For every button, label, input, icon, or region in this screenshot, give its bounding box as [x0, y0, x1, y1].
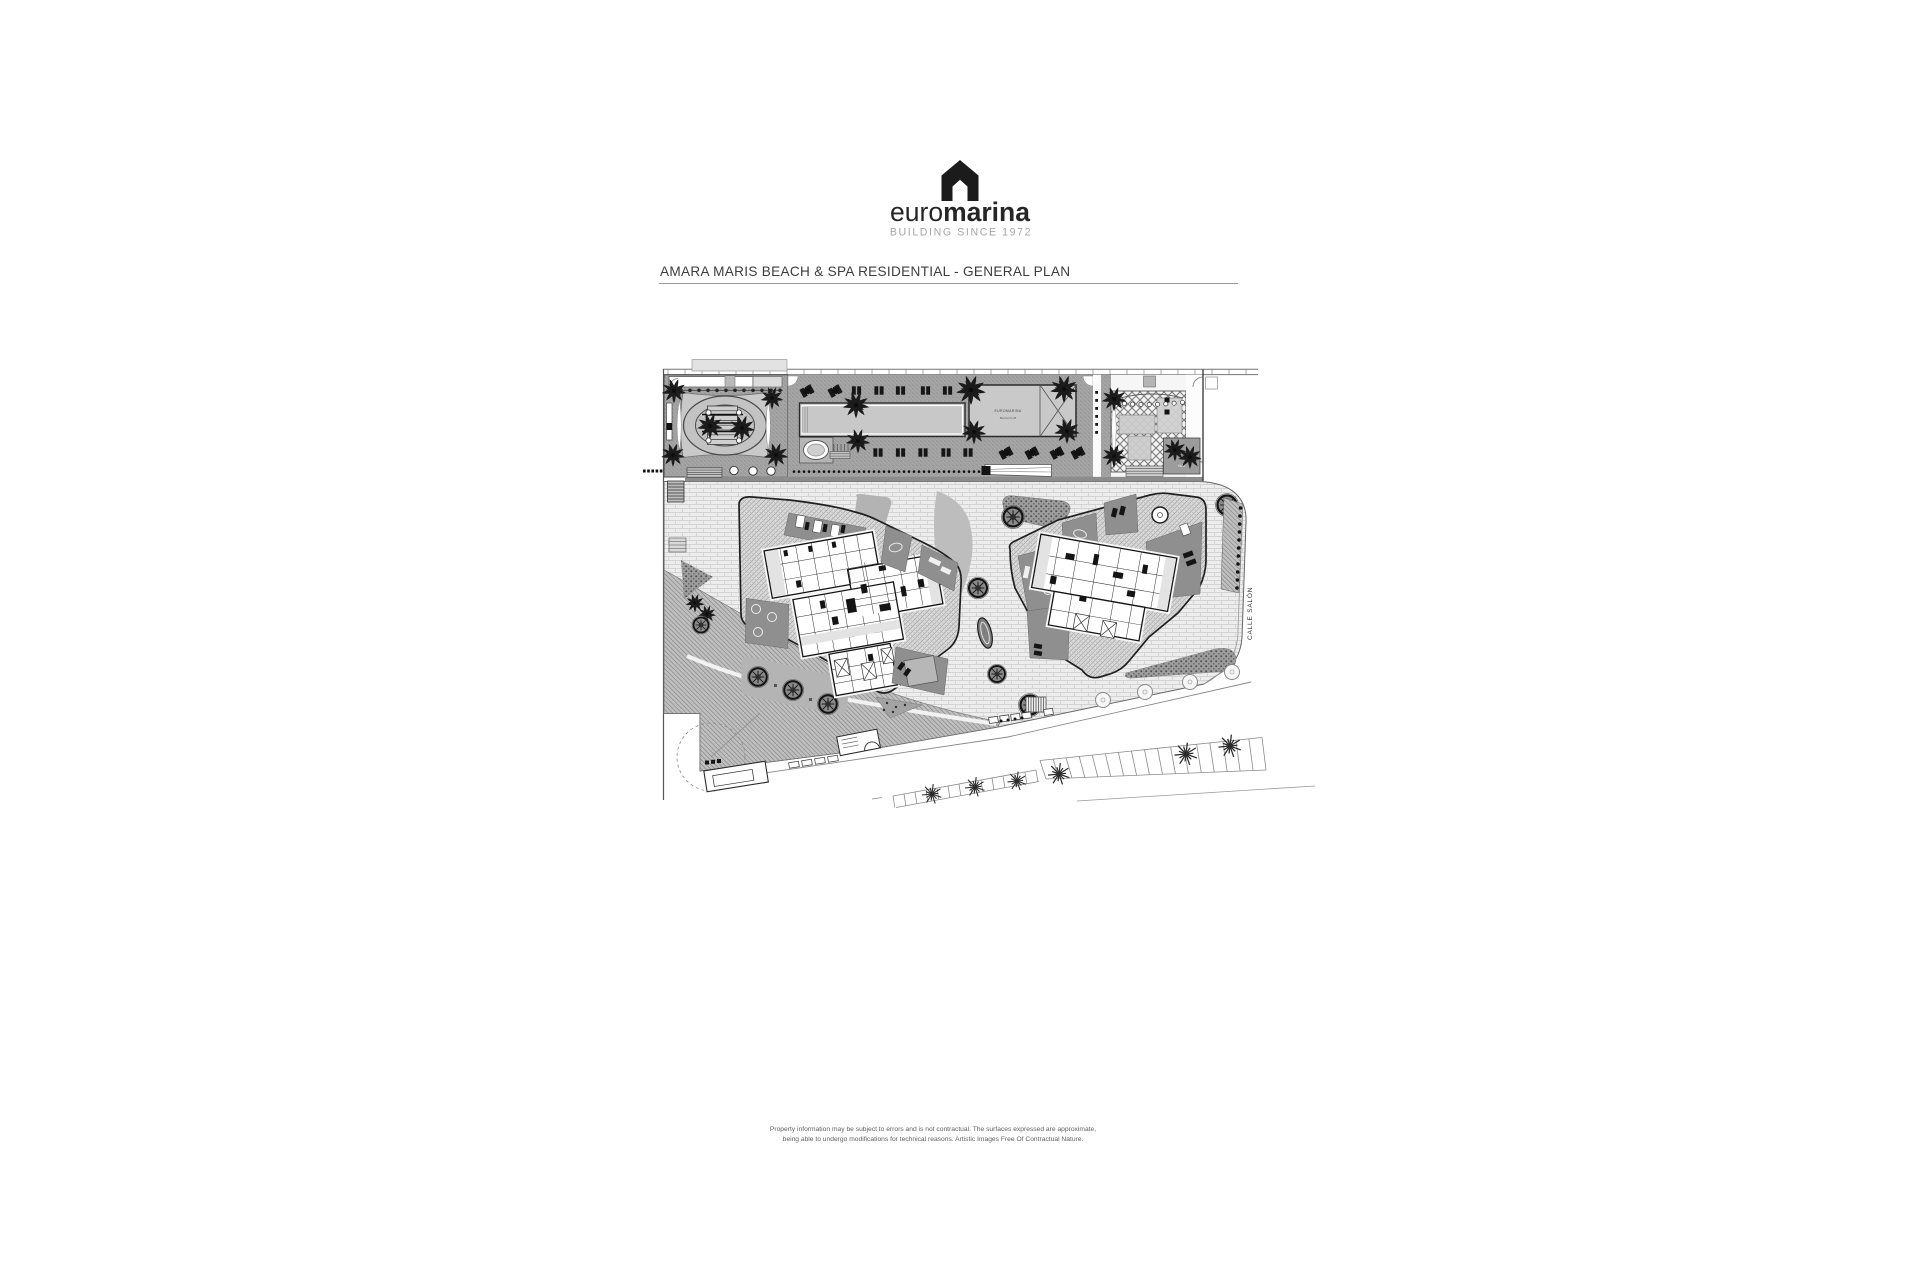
svg-text:EUROMARINA: EUROMARINA [995, 409, 1022, 413]
svg-text:AMARA MARIS BEACH & SPA RESIDE: AMARA MARIS BEACH & SPA RESIDENTIAL - GE… [660, 264, 1070, 279]
svg-text:being able to undergo modifica: being able to undergo modifications for … [783, 1136, 1084, 1143]
svg-text:BUILDING SINCE 1972: BUILDING SINCE 1972 [890, 227, 1032, 239]
svg-text:BEACH CLUB: BEACH CLUB [1000, 416, 1017, 420]
svg-text:Property information may be su: Property information may be subject to e… [770, 1126, 1096, 1133]
svg-text:euromarina: euromarina [890, 197, 1030, 227]
svg-text:CALLE SALÓN: CALLE SALÓN [1245, 587, 1254, 640]
